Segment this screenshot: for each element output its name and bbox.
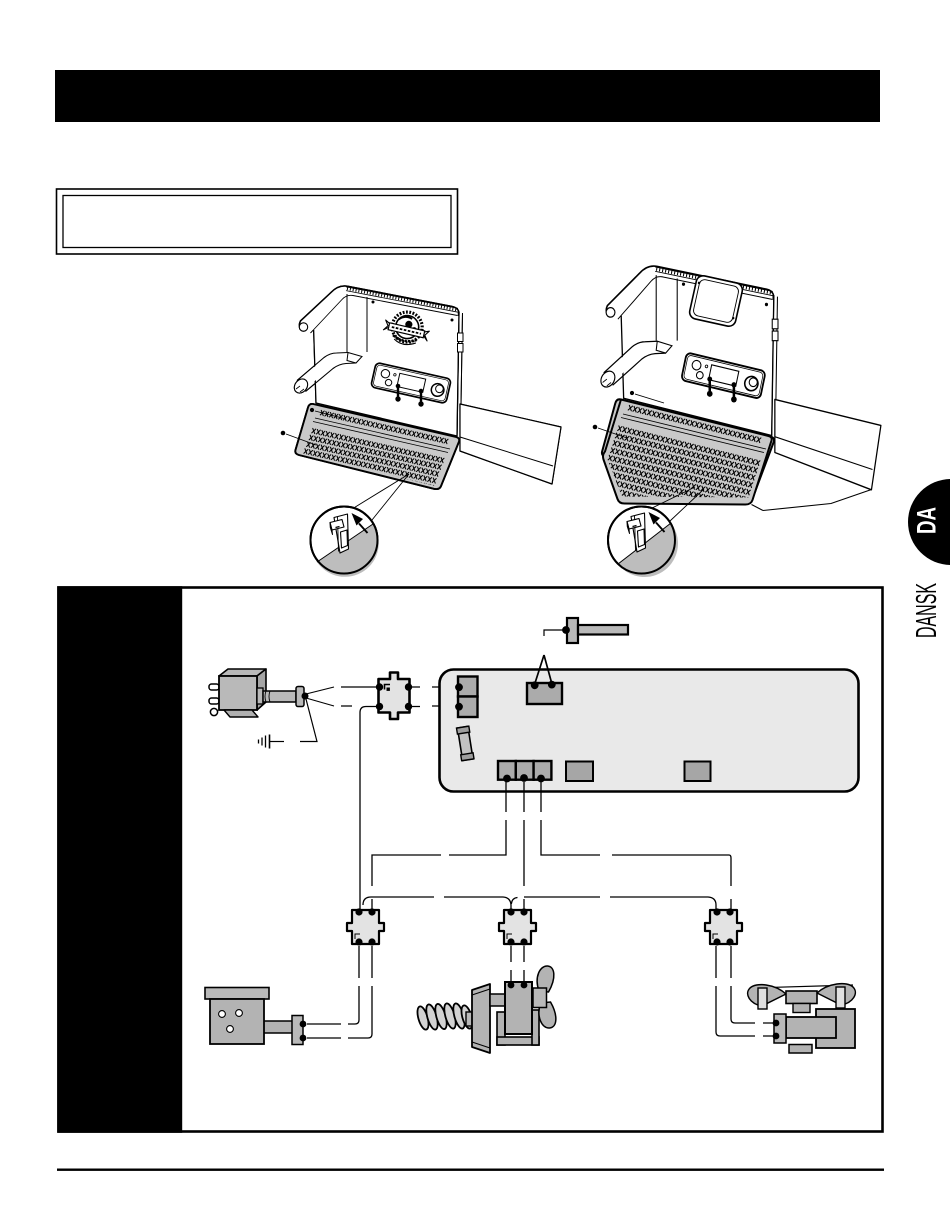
svg-text:DANSK: DANSK xyxy=(911,583,943,638)
svg-text:DA: DA xyxy=(912,507,942,534)
